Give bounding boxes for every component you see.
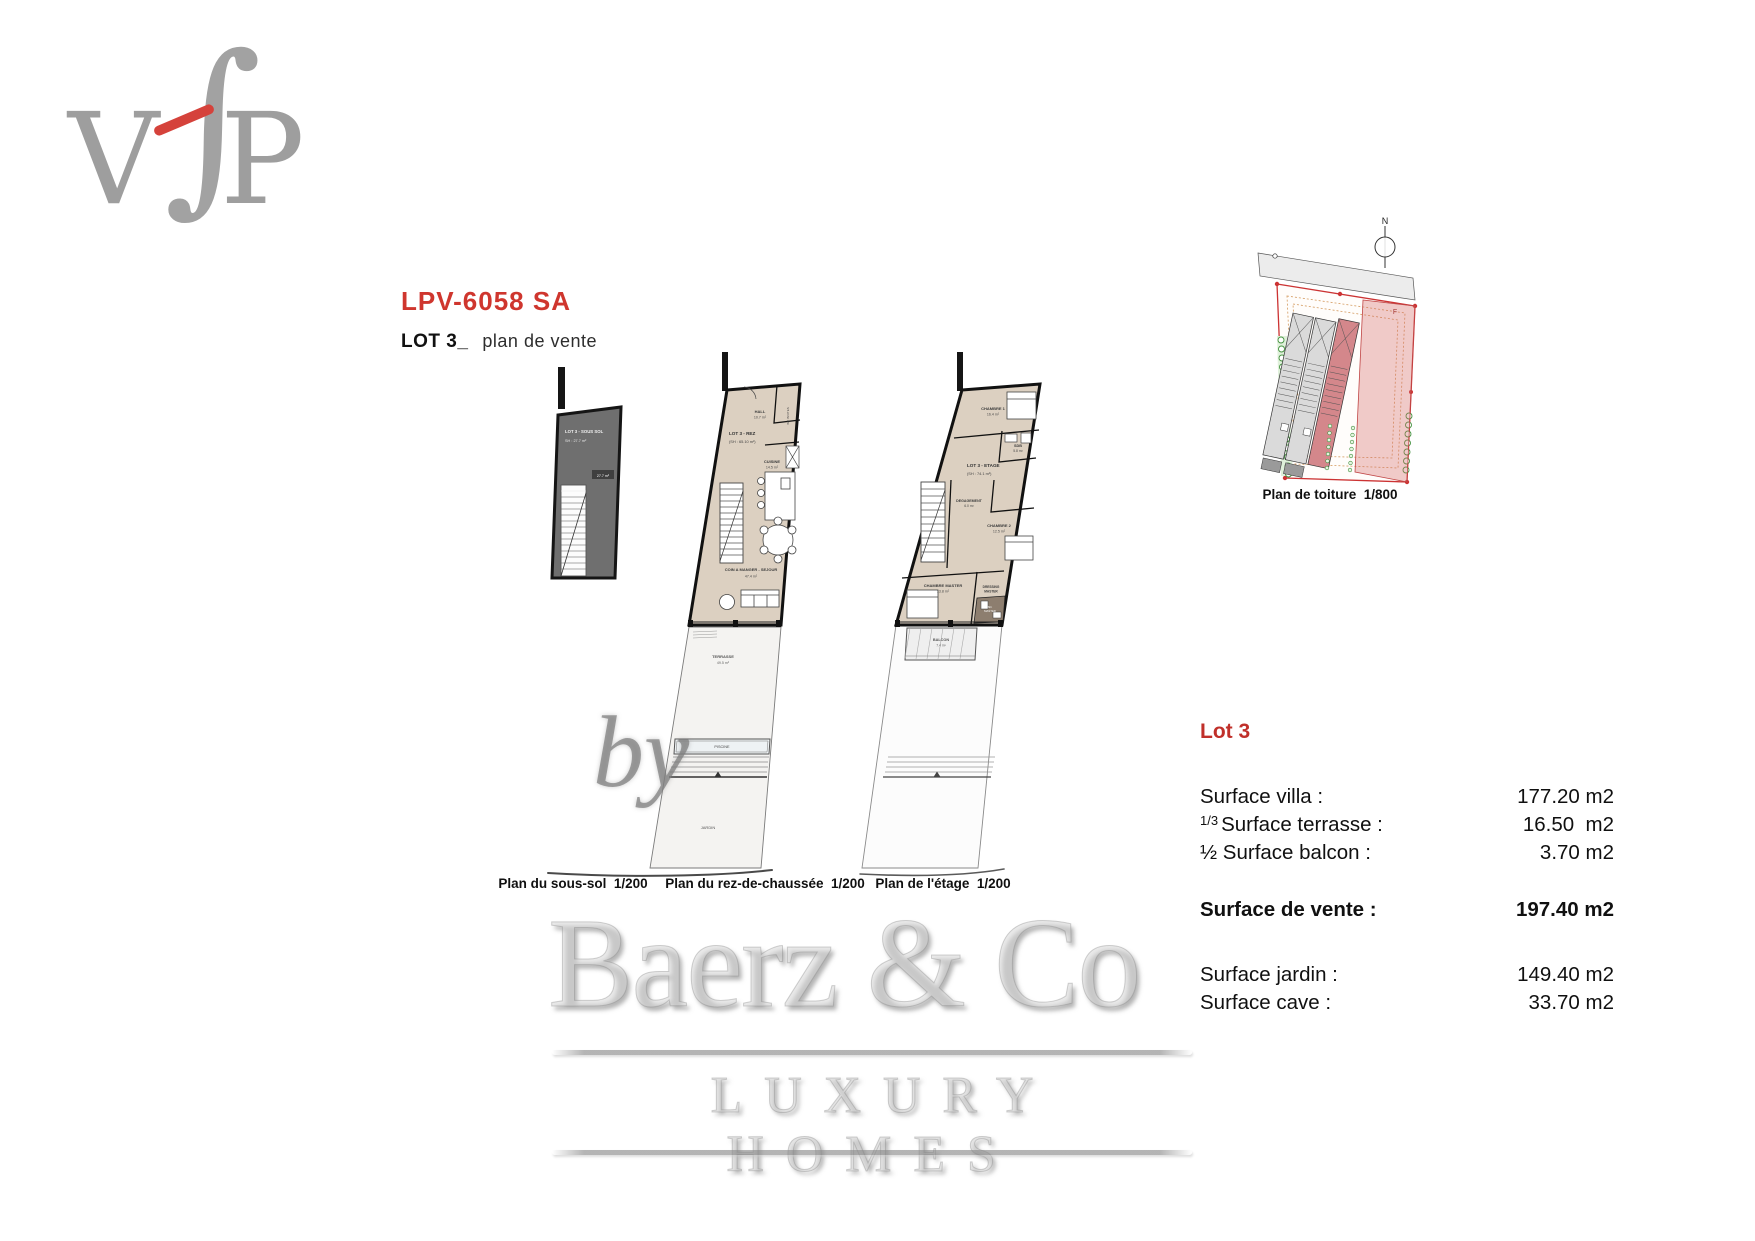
- caption-etage: Plan de l'étage 1/200: [858, 876, 1028, 891]
- row-value: 149.40 m2: [1517, 962, 1614, 988]
- surface-row-jardin: Surface jardin : 149.40 m2: [1200, 962, 1614, 988]
- watermark-divider-bottom: [552, 1150, 1192, 1155]
- rdc-stairs: [720, 483, 743, 563]
- row-value: 33.70 m2: [1529, 990, 1614, 1016]
- logo-letter-p: P: [220, 97, 305, 223]
- row-label: Surface villa :: [1200, 785, 1323, 808]
- row-label: ½ Surface balcon :: [1200, 841, 1371, 864]
- etage-master-name: CHAMBRE MASTER: [924, 583, 963, 588]
- north-arrow: N: [1375, 216, 1395, 268]
- surface-row-terrasse: 1/3Surface terrasse : 16.50 m2: [1200, 812, 1614, 838]
- etage-chambre2-name: CHAMBRE 2: [987, 523, 1012, 528]
- row-label: Surface de vente :: [1200, 898, 1377, 921]
- rdc-hall-area: 10.7 m²: [754, 416, 767, 420]
- etage-sdb-area: 5.8 m²: [1013, 449, 1023, 453]
- surface-row-balcon: ½ Surface balcon : 3.70 m2: [1200, 840, 1614, 866]
- surface-row-villa: Surface villa : 177.20 m2: [1200, 784, 1614, 810]
- etage-chambre1-name: CHAMBRE 1: [981, 406, 1006, 411]
- etage-degagement-area: 6.0 m²: [964, 504, 974, 508]
- etage-chambre2-area: 12.5 m²: [993, 530, 1006, 534]
- row-label: Surface cave :: [1200, 991, 1331, 1014]
- etage-balcon-name: BALCON: [933, 638, 949, 642]
- basement-stairs: [561, 485, 586, 576]
- rdc-hall-name: HALL: [755, 409, 766, 414]
- etage-bed-chambre2: [1005, 536, 1033, 560]
- page: V ∫ P LPV-6058 SA LOT 3_plan de vente 27…: [0, 0, 1755, 1241]
- basement-lot-area: SH : 27.7 m²: [565, 439, 587, 443]
- logo-letter-v: V: [68, 97, 159, 223]
- lot-line: LOT 3_plan de vente: [401, 331, 597, 353]
- surface-table: Lot 3 Surface villa : 177.20 m2 1/3Surfa…: [1200, 720, 1614, 1030]
- north-label: N: [1382, 216, 1389, 226]
- project-code: LPV-6058 SA: [401, 286, 597, 317]
- etage-bed-chambre1: [1007, 392, 1036, 419]
- basement-wall-stub: [558, 367, 565, 409]
- rdc-lot-area: (SH : 65.10 m²): [729, 439, 756, 444]
- rdc-piscine-name: PISCINE: [714, 745, 730, 749]
- plan-sous-sol: 27.7 m² LOT 3 - SOUS SOL SH : 27.7 m²: [548, 365, 633, 580]
- rdc-terrasse-area: 49.5 m²: [717, 661, 730, 665]
- row-value: 177.20 m2: [1517, 784, 1614, 810]
- lot-title: LOT 3_: [401, 331, 468, 352]
- etage-lot-area: (SH : 74.1 m²): [967, 471, 992, 476]
- vfp-logo: V ∫ P: [60, 45, 300, 230]
- etage-garden-outline: [862, 625, 1002, 868]
- roof-lot3-zone: [1355, 300, 1415, 482]
- etage-dressing-line1: DRESSING: [983, 585, 1000, 589]
- title-block: LPV-6058 SA LOT 3_plan de vente: [401, 286, 597, 353]
- rdc-garden-bottom-stroke: [548, 870, 772, 876]
- etage-lot-label: LOT 3 - ETAGE: [967, 463, 1000, 468]
- roof-road-marker: [1273, 254, 1277, 258]
- etage-dressing-line2: MASTER: [984, 590, 998, 594]
- plan-rez-de-chaussee: HALL 10.7 m² WC INVITES LOT 3 - REZ (SH …: [645, 350, 805, 875]
- basement-badge-text: 27.7 m²: [597, 474, 610, 478]
- rdc-terrasse-name: TERRASSE: [712, 654, 734, 659]
- plan-etage: CHAMBRE 1 16.4 m² LOT 3 - ETAGE (SH : 74…: [855, 350, 1045, 875]
- etage-balcon-area: 7.4 m²: [936, 644, 946, 648]
- rdc-sejour-area: 47.4 m²: [745, 575, 758, 579]
- rdc-kitchen-counter: [786, 446, 799, 468]
- etage-wall-stub: [957, 352, 963, 391]
- caption-sous-sol: Plan du sous-sol 1/200: [498, 876, 648, 891]
- rdc-lot-label: LOT 3 - REZ: [729, 431, 755, 436]
- etage-sde-line2: MASTER: [984, 609, 996, 613]
- watermark-divider-top: [552, 1050, 1192, 1055]
- lot-subtitle: plan de vente: [482, 331, 597, 351]
- etage-master-area: 13.8 m²: [937, 590, 950, 594]
- rdc-wall-stub: [722, 352, 728, 391]
- row-value: 197.40 m2: [1516, 897, 1614, 923]
- row-value: 3.70 m2: [1540, 840, 1614, 866]
- rdc-cuisine-area: 14.5 m²: [766, 466, 779, 470]
- basement-lot-label: LOT 3 - SOUS SOL: [565, 429, 604, 434]
- roof-zone-label: F: [1393, 309, 1397, 316]
- rdc-jardin-name: JARDIN: [701, 825, 716, 830]
- watermark-brand: Baerz & Co: [548, 896, 1196, 1030]
- rdc-cuisine-name: CUISINE: [764, 459, 781, 464]
- plan-toiture: N: [1235, 210, 1425, 495]
- caption-toiture: Plan de toiture 1/800: [1235, 487, 1425, 502]
- caption-rdc: Plan du rez-de-chaussée 1/200: [658, 876, 872, 891]
- etage-bed-master: [907, 590, 938, 618]
- rdc-sejour-name: COIN A MANGER - SEJOUR: [725, 567, 778, 572]
- row-prefix: 1/3: [1200, 813, 1218, 828]
- row-label: Surface terrasse :: [1221, 813, 1383, 836]
- etage-chambre1-area: 16.4 m²: [987, 413, 1000, 417]
- etage-degagement-name: DEGAGEMENT: [956, 499, 983, 503]
- row-label: Surface jardin :: [1200, 963, 1338, 986]
- surface-row-vente: Surface de vente : 197.40 m2: [1200, 897, 1614, 923]
- surface-table-title: Lot 3: [1200, 720, 1250, 744]
- etage-garden-bottom-stroke: [860, 869, 1004, 875]
- surface-row-cave: Surface cave : 33.70 m2: [1200, 990, 1614, 1016]
- etage-sdb-name: SDB: [1014, 444, 1022, 448]
- etage-stairs: [921, 482, 945, 562]
- rdc-wc-name: WC INVITES: [786, 407, 790, 425]
- row-value: 16.50 m2: [1523, 812, 1614, 838]
- watermark-tagline: LUXURY HOMES: [552, 1066, 1192, 1184]
